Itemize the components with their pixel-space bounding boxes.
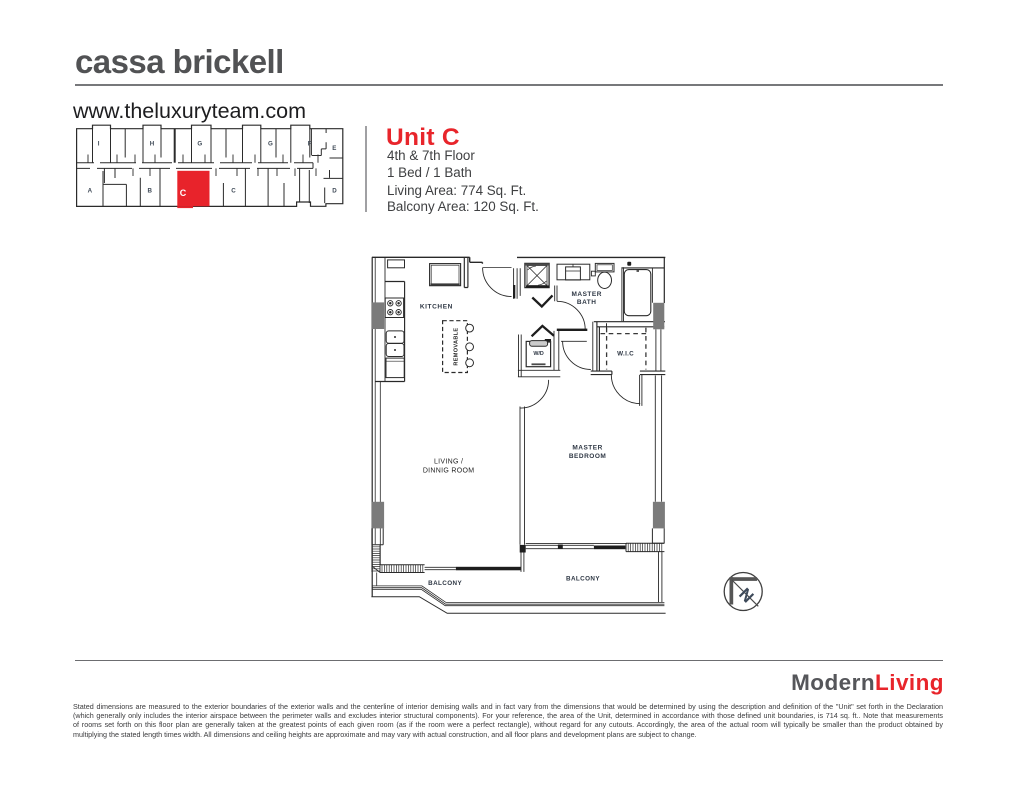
svg-text:W/D: W/D [533,351,544,357]
svg-text:I: I [98,141,100,148]
svg-text:G: G [268,141,273,148]
svg-text:BATH: BATH [577,299,597,306]
svg-text:MASTER: MASTER [571,291,601,298]
svg-text:LIVING /: LIVING / [434,459,463,466]
svg-text:W.I.C: W.I.C [617,351,634,358]
svg-text:BALCONY: BALCONY [566,575,600,582]
svg-text:DINNIG ROOM: DINNIG ROOM [423,467,475,474]
svg-text:E: E [332,145,336,152]
svg-text:D: D [332,188,337,195]
svg-text:G: G [197,141,202,148]
svg-text:C: C [180,188,187,198]
svg-text:B: B [148,188,153,195]
svg-text:N: N [735,584,757,606]
svg-text:A: A [88,188,93,195]
svg-text:BEDROOM: BEDROOM [569,453,606,460]
svg-text:BALCONY: BALCONY [428,580,462,587]
svg-text:KITCHEN: KITCHEN [420,303,453,310]
svg-text:H: H [150,141,155,148]
svg-text:C: C [231,188,236,195]
svg-text:F: F [308,141,312,148]
svg-text:MASTER: MASTER [572,445,602,452]
svg-text:REMOVABLE: REMOVABLE [454,328,460,366]
